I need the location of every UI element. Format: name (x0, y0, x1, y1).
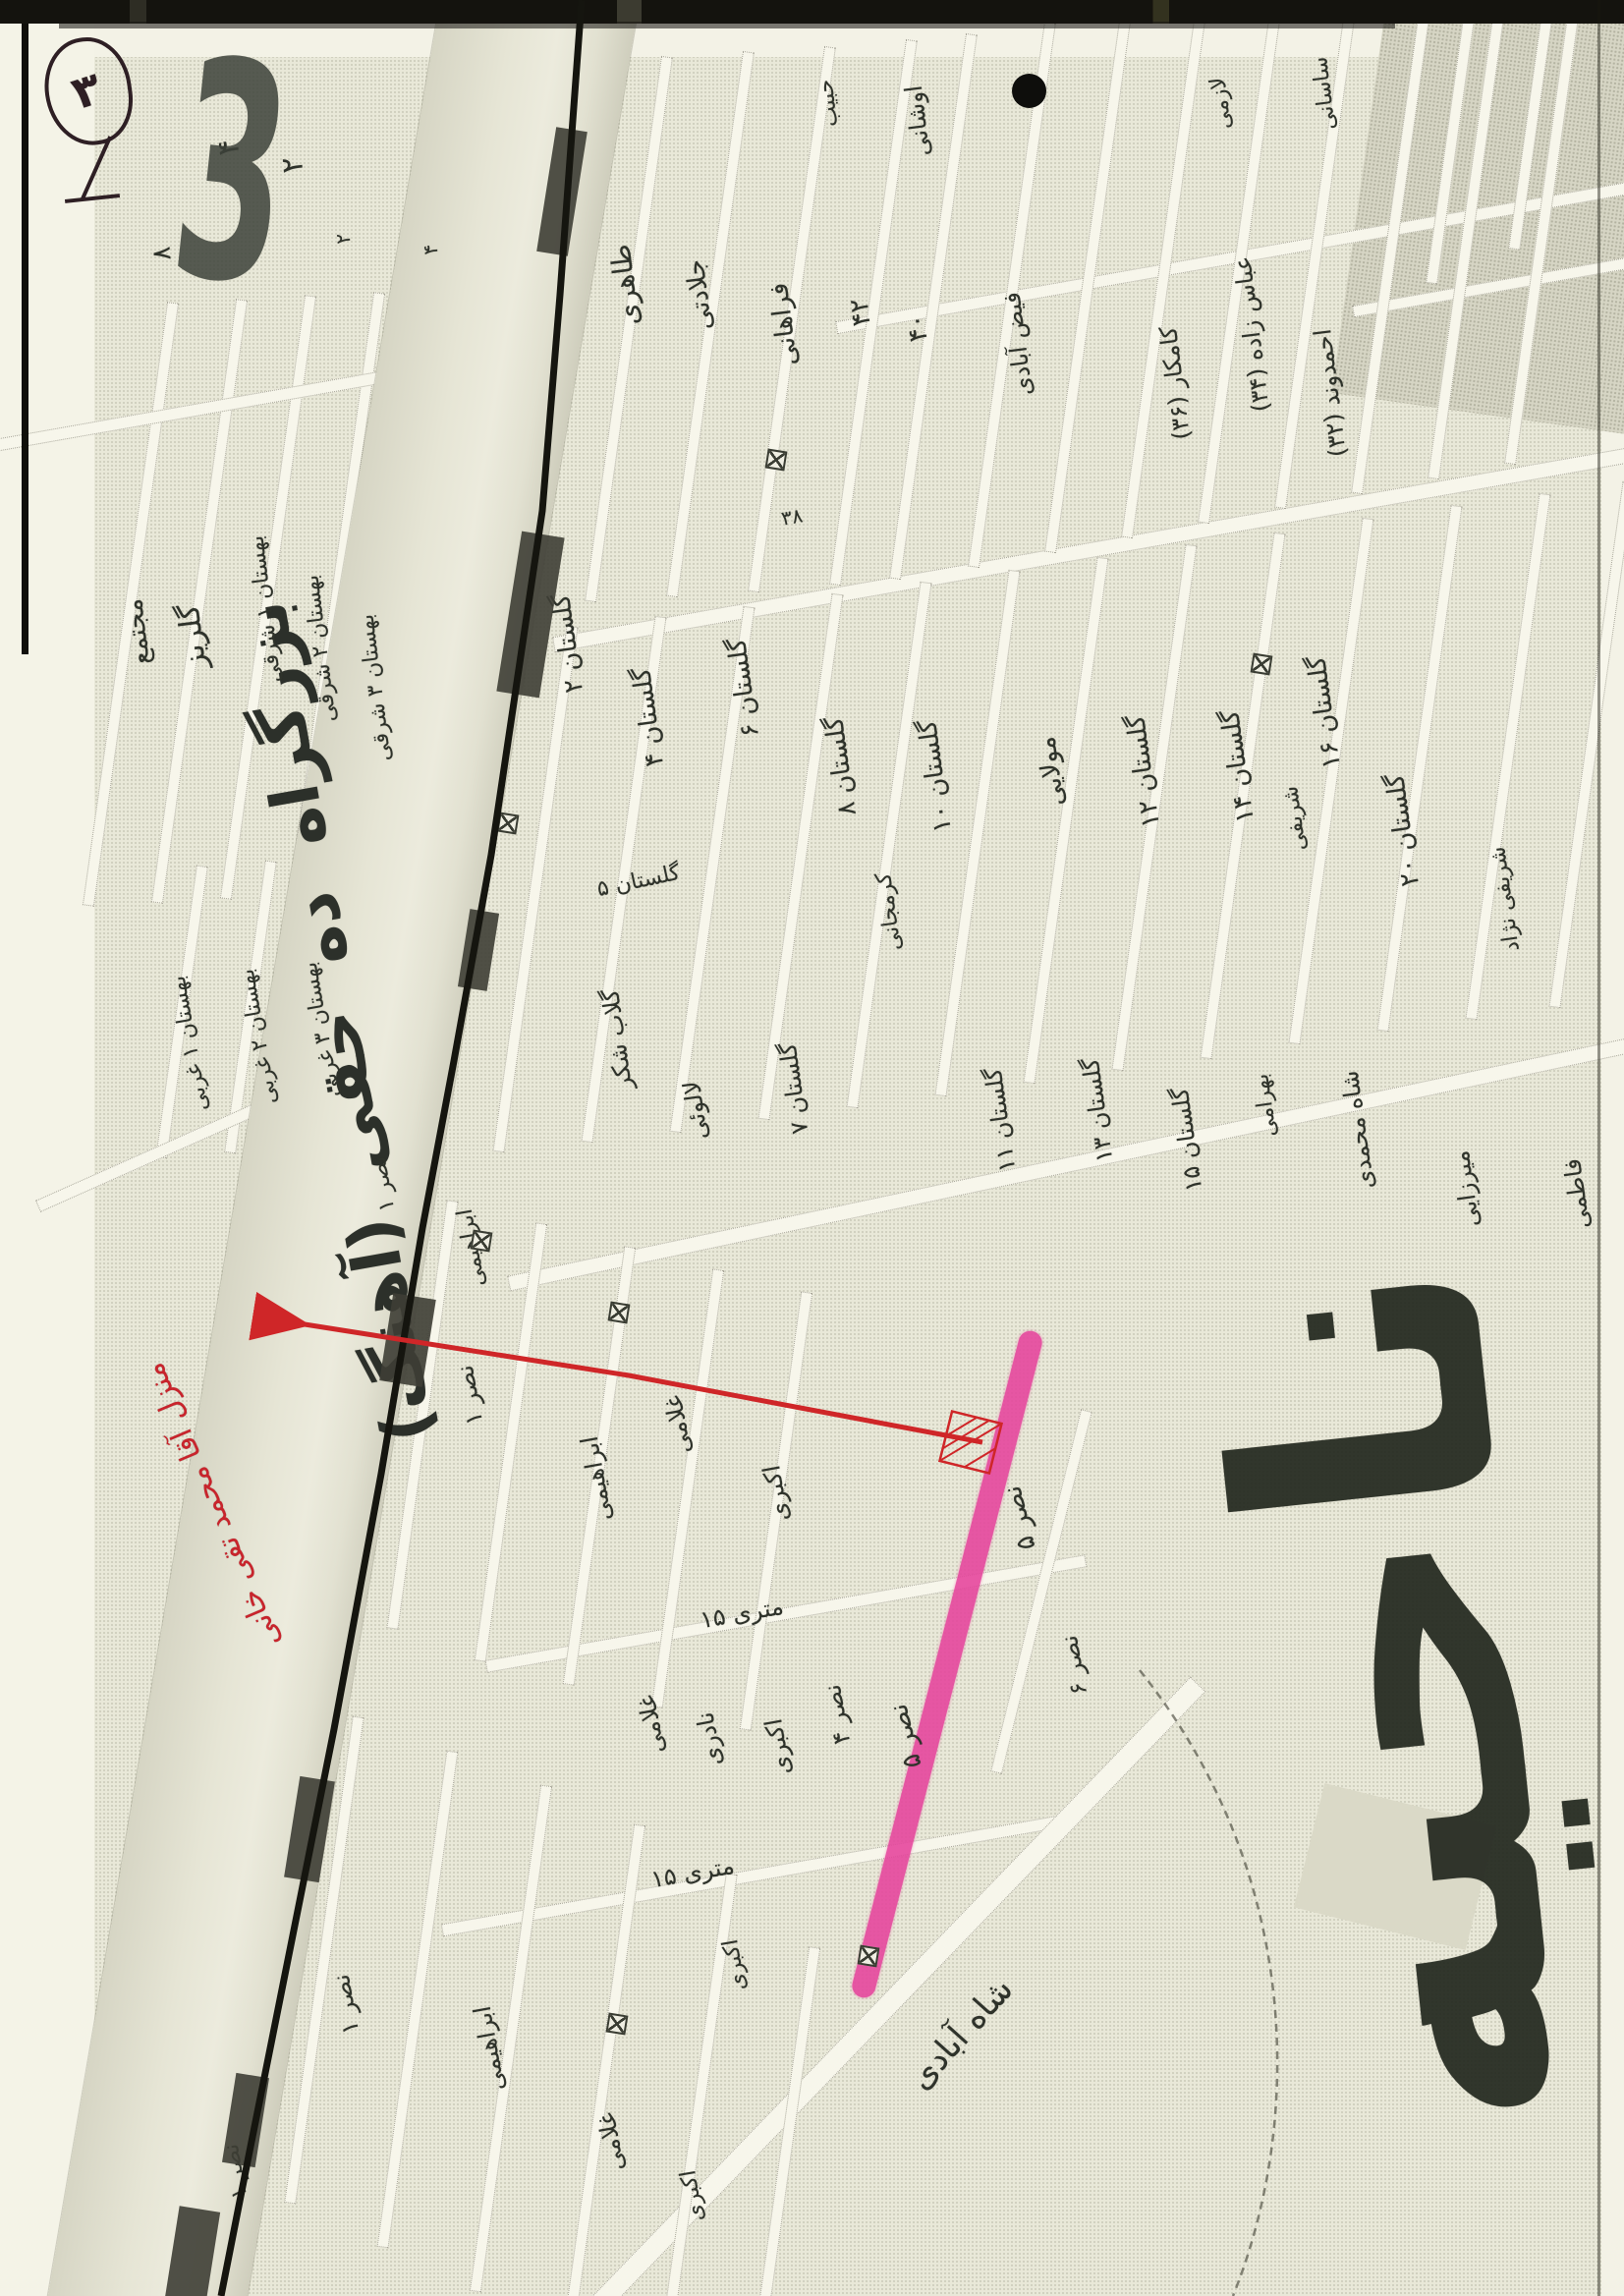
street-label: فاطمی (1558, 1157, 1596, 1231)
street-label: گلستان ۱۰ (913, 718, 958, 834)
street-label: نصر ۱ (451, 1363, 488, 1427)
scanned-map-page: بزرگراه ده حقی (آهنگ) مجتمعگلریزبهستان ۱… (0, 0, 1624, 2296)
street (846, 582, 931, 1108)
street-label: ۴۰ (901, 312, 933, 343)
street-label: ۴ (419, 244, 443, 256)
street-label: لالوئی (678, 1079, 713, 1141)
street-label: اکبری (757, 1463, 795, 1523)
street-label: گلستان ۱۳ (1077, 1056, 1119, 1163)
street-label: میرزایی (1447, 1148, 1485, 1228)
street-label: نصر ۵ (997, 1483, 1041, 1553)
highlighted-street-nasr5 (850, 1328, 1045, 2000)
street (934, 570, 1020, 1096)
street-label: کامکار (۳۶) (1154, 325, 1196, 441)
map-symbol-icon (471, 1230, 493, 1253)
street-label: شریفی (1278, 784, 1312, 852)
street-label: گلریز (172, 602, 214, 670)
street-label: اکبری (759, 1716, 797, 1776)
street-label: حبیب (813, 78, 844, 128)
left-paper-margin (0, 24, 94, 2296)
street-label: مولایی (1032, 735, 1071, 809)
street-label: نصر ۱ (327, 1972, 364, 2036)
street-label: ۴۲ (844, 297, 876, 327)
street-label: گلستان ۵ (594, 861, 682, 902)
street (377, 1751, 459, 2249)
street-label: لازمی (1205, 76, 1236, 131)
street-label: گلستان ۸ (819, 715, 863, 817)
street-label: شاه آبادی (901, 1970, 1021, 2098)
street-label: ابراهیمی (576, 1434, 618, 1524)
street-label: اوشانی (900, 84, 936, 157)
map-symbol-icon (858, 1945, 880, 1968)
street-label: نادری (691, 1709, 727, 1767)
district-title: ناحیه (1145, 1241, 1624, 2158)
street-label: غلامی (659, 1393, 697, 1456)
map-symbol-icon (606, 2013, 629, 2036)
street-label: اکبری (718, 1937, 752, 1992)
street-label: شاه محمدی (1336, 1069, 1380, 1191)
street (563, 1676, 1206, 2296)
street-label: گلستان ۴ (627, 666, 670, 768)
map-symbol-icon (608, 1302, 631, 1324)
scan-edge-left (22, 24, 28, 654)
scan-edge-top-shadow (59, 22, 1395, 28)
street-label: نصر ۶ (1055, 1633, 1092, 1697)
street-label: گلستان ۷ (774, 1041, 814, 1136)
street (1288, 518, 1373, 1044)
street-label: نصر ۴ (818, 1682, 856, 1746)
street (1376, 505, 1462, 1032)
map-symbol-icon (497, 812, 520, 835)
punch-hole-dot (1012, 74, 1046, 108)
street-label: گلاب شکر (596, 987, 638, 1091)
map-symbol-icon (1251, 653, 1273, 676)
street (1023, 557, 1108, 1084)
street-label: گلستان ۱۱ (980, 1066, 1022, 1173)
street-label: غلامی (633, 1693, 670, 1756)
street-label: ۳۸ (779, 503, 804, 530)
scan-edge-right (1597, 0, 1600, 2296)
map-symbol-icon (765, 449, 788, 472)
street (651, 1268, 725, 1708)
street-label: ۲ (331, 233, 356, 246)
scan-edge-top (0, 0, 1624, 24)
